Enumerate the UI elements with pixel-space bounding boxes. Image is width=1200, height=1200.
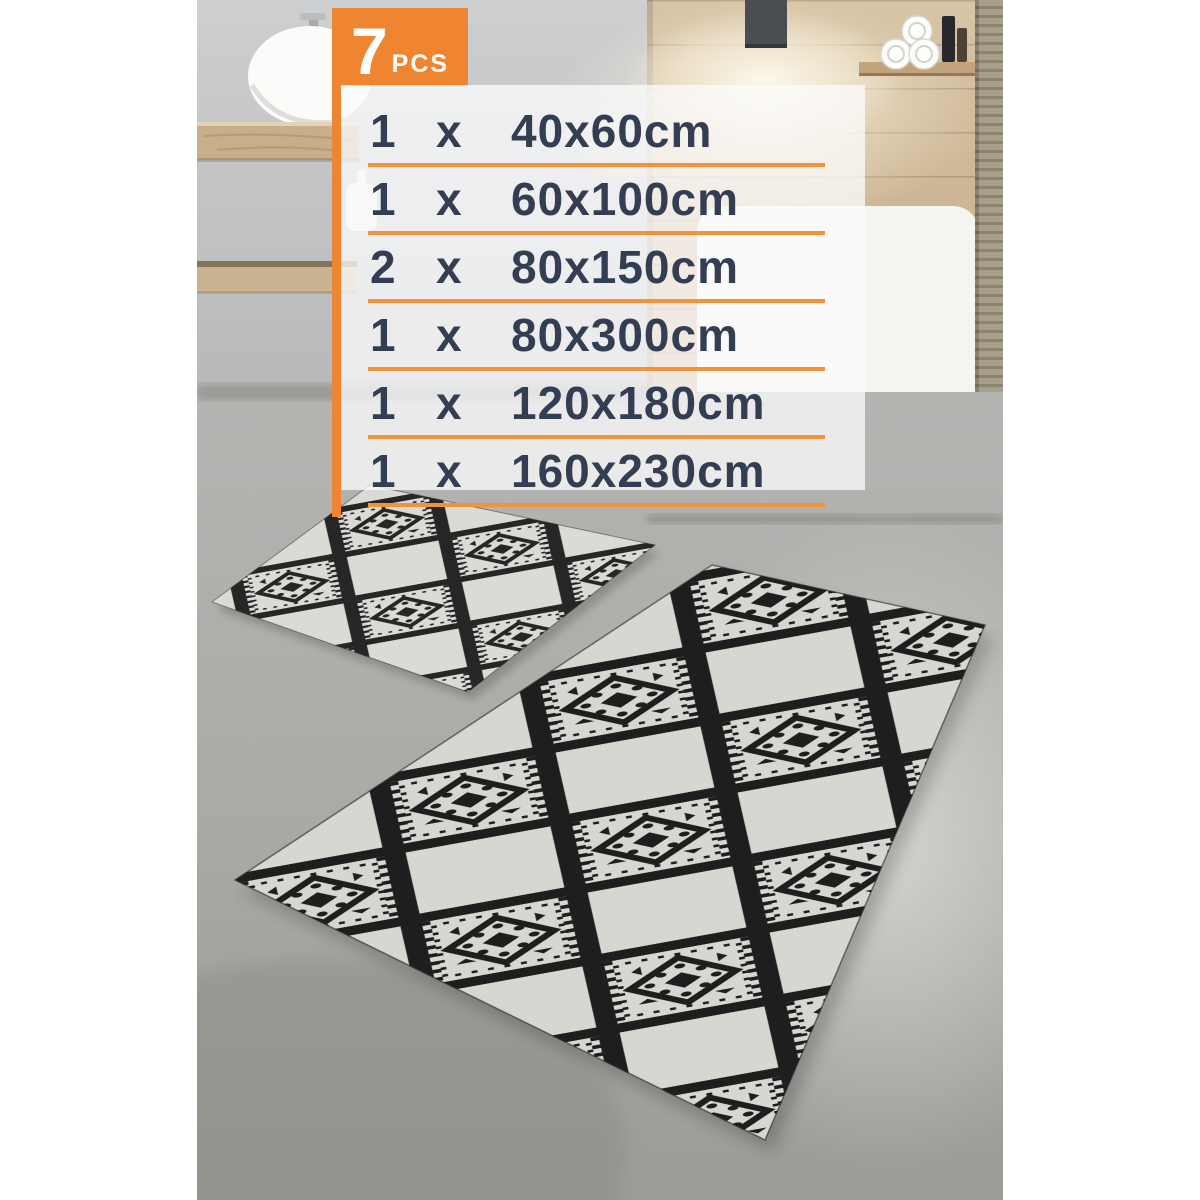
size-value: 80x150cm <box>511 244 739 290</box>
size-qty: 1 <box>368 448 436 494</box>
times-symbol: x <box>436 380 508 426</box>
size-row: 1 x 120x180cm <box>368 371 825 439</box>
size-value: 160x230cm <box>511 448 766 494</box>
times-symbol: x <box>436 448 508 494</box>
size-qty: 1 <box>368 176 436 222</box>
piece-count-badge: 7 PCS <box>332 8 468 86</box>
size-row: 1 x 60x100cm <box>368 167 825 235</box>
size-value: 40x60cm <box>511 108 712 154</box>
times-symbol: x <box>436 244 508 290</box>
size-qty: 1 <box>368 108 436 154</box>
piece-count: 7 <box>351 23 388 79</box>
size-row: 1 x 80x300cm <box>368 303 825 371</box>
size-qty: 2 <box>368 244 436 290</box>
size-row: 1 x 40x60cm <box>368 99 825 167</box>
size-row: 1 x 160x230cm <box>368 439 825 507</box>
size-value: 60x100cm <box>511 176 739 222</box>
times-symbol: x <box>436 176 508 222</box>
size-list-panel: 1 x 40x60cm 1 x 60x100cm 2 x 80x150cm 1 … <box>341 85 865 490</box>
size-qty: 1 <box>368 380 436 426</box>
times-symbol: x <box>436 108 508 154</box>
wall-lamp <box>745 0 787 48</box>
accent-side-bar <box>332 86 341 517</box>
size-value: 80x300cm <box>511 312 739 358</box>
size-row: 2 x 80x150cm <box>368 235 825 303</box>
size-value: 120x180cm <box>511 380 766 426</box>
times-symbol: x <box>436 312 508 358</box>
size-qty: 1 <box>368 312 436 358</box>
piece-unit: PCS <box>392 52 449 77</box>
